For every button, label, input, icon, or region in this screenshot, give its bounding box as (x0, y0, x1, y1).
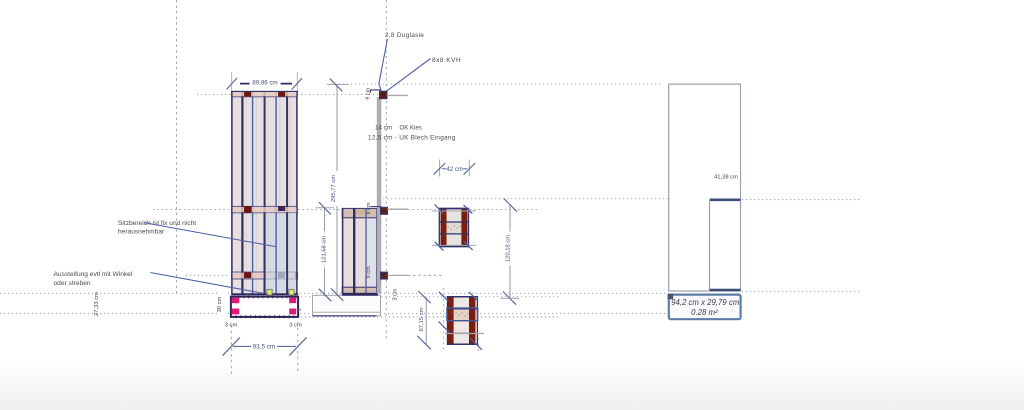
svg-text:Aussteifung evtl mit Winkel: Aussteifung evtl mit Winkel (54, 271, 133, 278)
svg-text:42 cm: 42 cm (446, 167, 462, 173)
svg-text:3 cm: 3 cm (225, 323, 238, 329)
svg-text:OK Kies: OK Kies (400, 125, 422, 132)
svg-text:5: 5 (297, 308, 303, 311)
svg-text:30 cm: 30 cm (217, 296, 223, 312)
svg-text:41,38 cm: 41,38 cm (714, 175, 738, 181)
svg-text:3 cm: 3 cm (393, 288, 399, 300)
svg-text:12,5 cm - UK Blech Eingang: 12,5 cm - UK Blech Eingang (368, 134, 456, 141)
svg-text:94,2 cm x 29,79 cm: 94,2 cm x 29,79 cm (671, 298, 740, 307)
svg-text:herausnehmbar: herausnehmbar (118, 229, 165, 236)
svg-text:8x8 KVH: 8x8 KVH (432, 57, 461, 64)
svg-text:295,77 cm: 295,77 cm (331, 175, 337, 202)
svg-text:27,33 cm: 27,33 cm (94, 292, 100, 316)
svg-text:120,18 cm: 120,18 cm (505, 235, 511, 262)
svg-text:14 cm: 14 cm (375, 125, 392, 132)
svg-text:9 cm: 9 cm (366, 266, 372, 278)
svg-text:2,8 Duglasie: 2,8 Duglasie (385, 32, 424, 39)
svg-text:89,86 cm: 89,86 cm (252, 80, 277, 87)
svg-text:67,15 cm: 67,15 cm (419, 307, 425, 331)
svg-text:9 cm: 9 cm (365, 87, 371, 99)
svg-text:9 cm: 9 cm (366, 202, 372, 214)
svg-text:oder streben: oder streben (54, 280, 91, 287)
svg-text:Sitzbereich ist fix und nicht: Sitzbereich ist fix und nicht (118, 220, 196, 227)
svg-text:93,5 cm: 93,5 cm (253, 343, 276, 350)
svg-text:3 cm: 3 cm (289, 323, 302, 329)
svg-text:121,68 cm: 121,68 cm (322, 236, 328, 263)
svg-text:0.28 m²: 0.28 m² (691, 308, 718, 317)
